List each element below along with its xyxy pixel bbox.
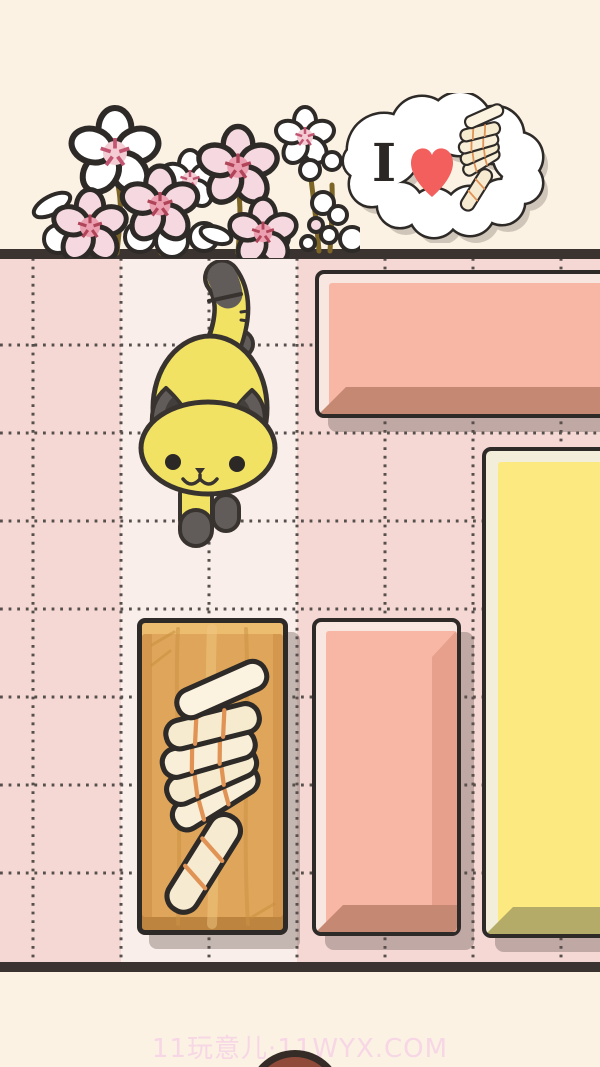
puzzle-board (0, 258, 600, 962)
cutting-board (137, 618, 288, 935)
cutting-board-surface (142, 623, 283, 930)
block-bevel-bottom (319, 387, 600, 414)
cat[interactable] (138, 260, 288, 550)
pink-block-vertical[interactable] (312, 618, 461, 936)
block-face (498, 462, 600, 934)
thought-bubble: I (332, 93, 552, 243)
pink-block-horizontal[interactable] (315, 270, 600, 418)
yellow-block-vertical[interactable] (482, 447, 600, 938)
bubble-love-text: I (372, 133, 396, 194)
cherry-blossoms (20, 85, 360, 258)
block-bevel-right (432, 630, 457, 907)
cat-head (141, 402, 275, 494)
game-screen: I 11玩意儿·11WYX.COM (0, 0, 600, 1067)
board-bottom-edge (0, 962, 600, 972)
sliced-chicken-icon (159, 657, 271, 918)
